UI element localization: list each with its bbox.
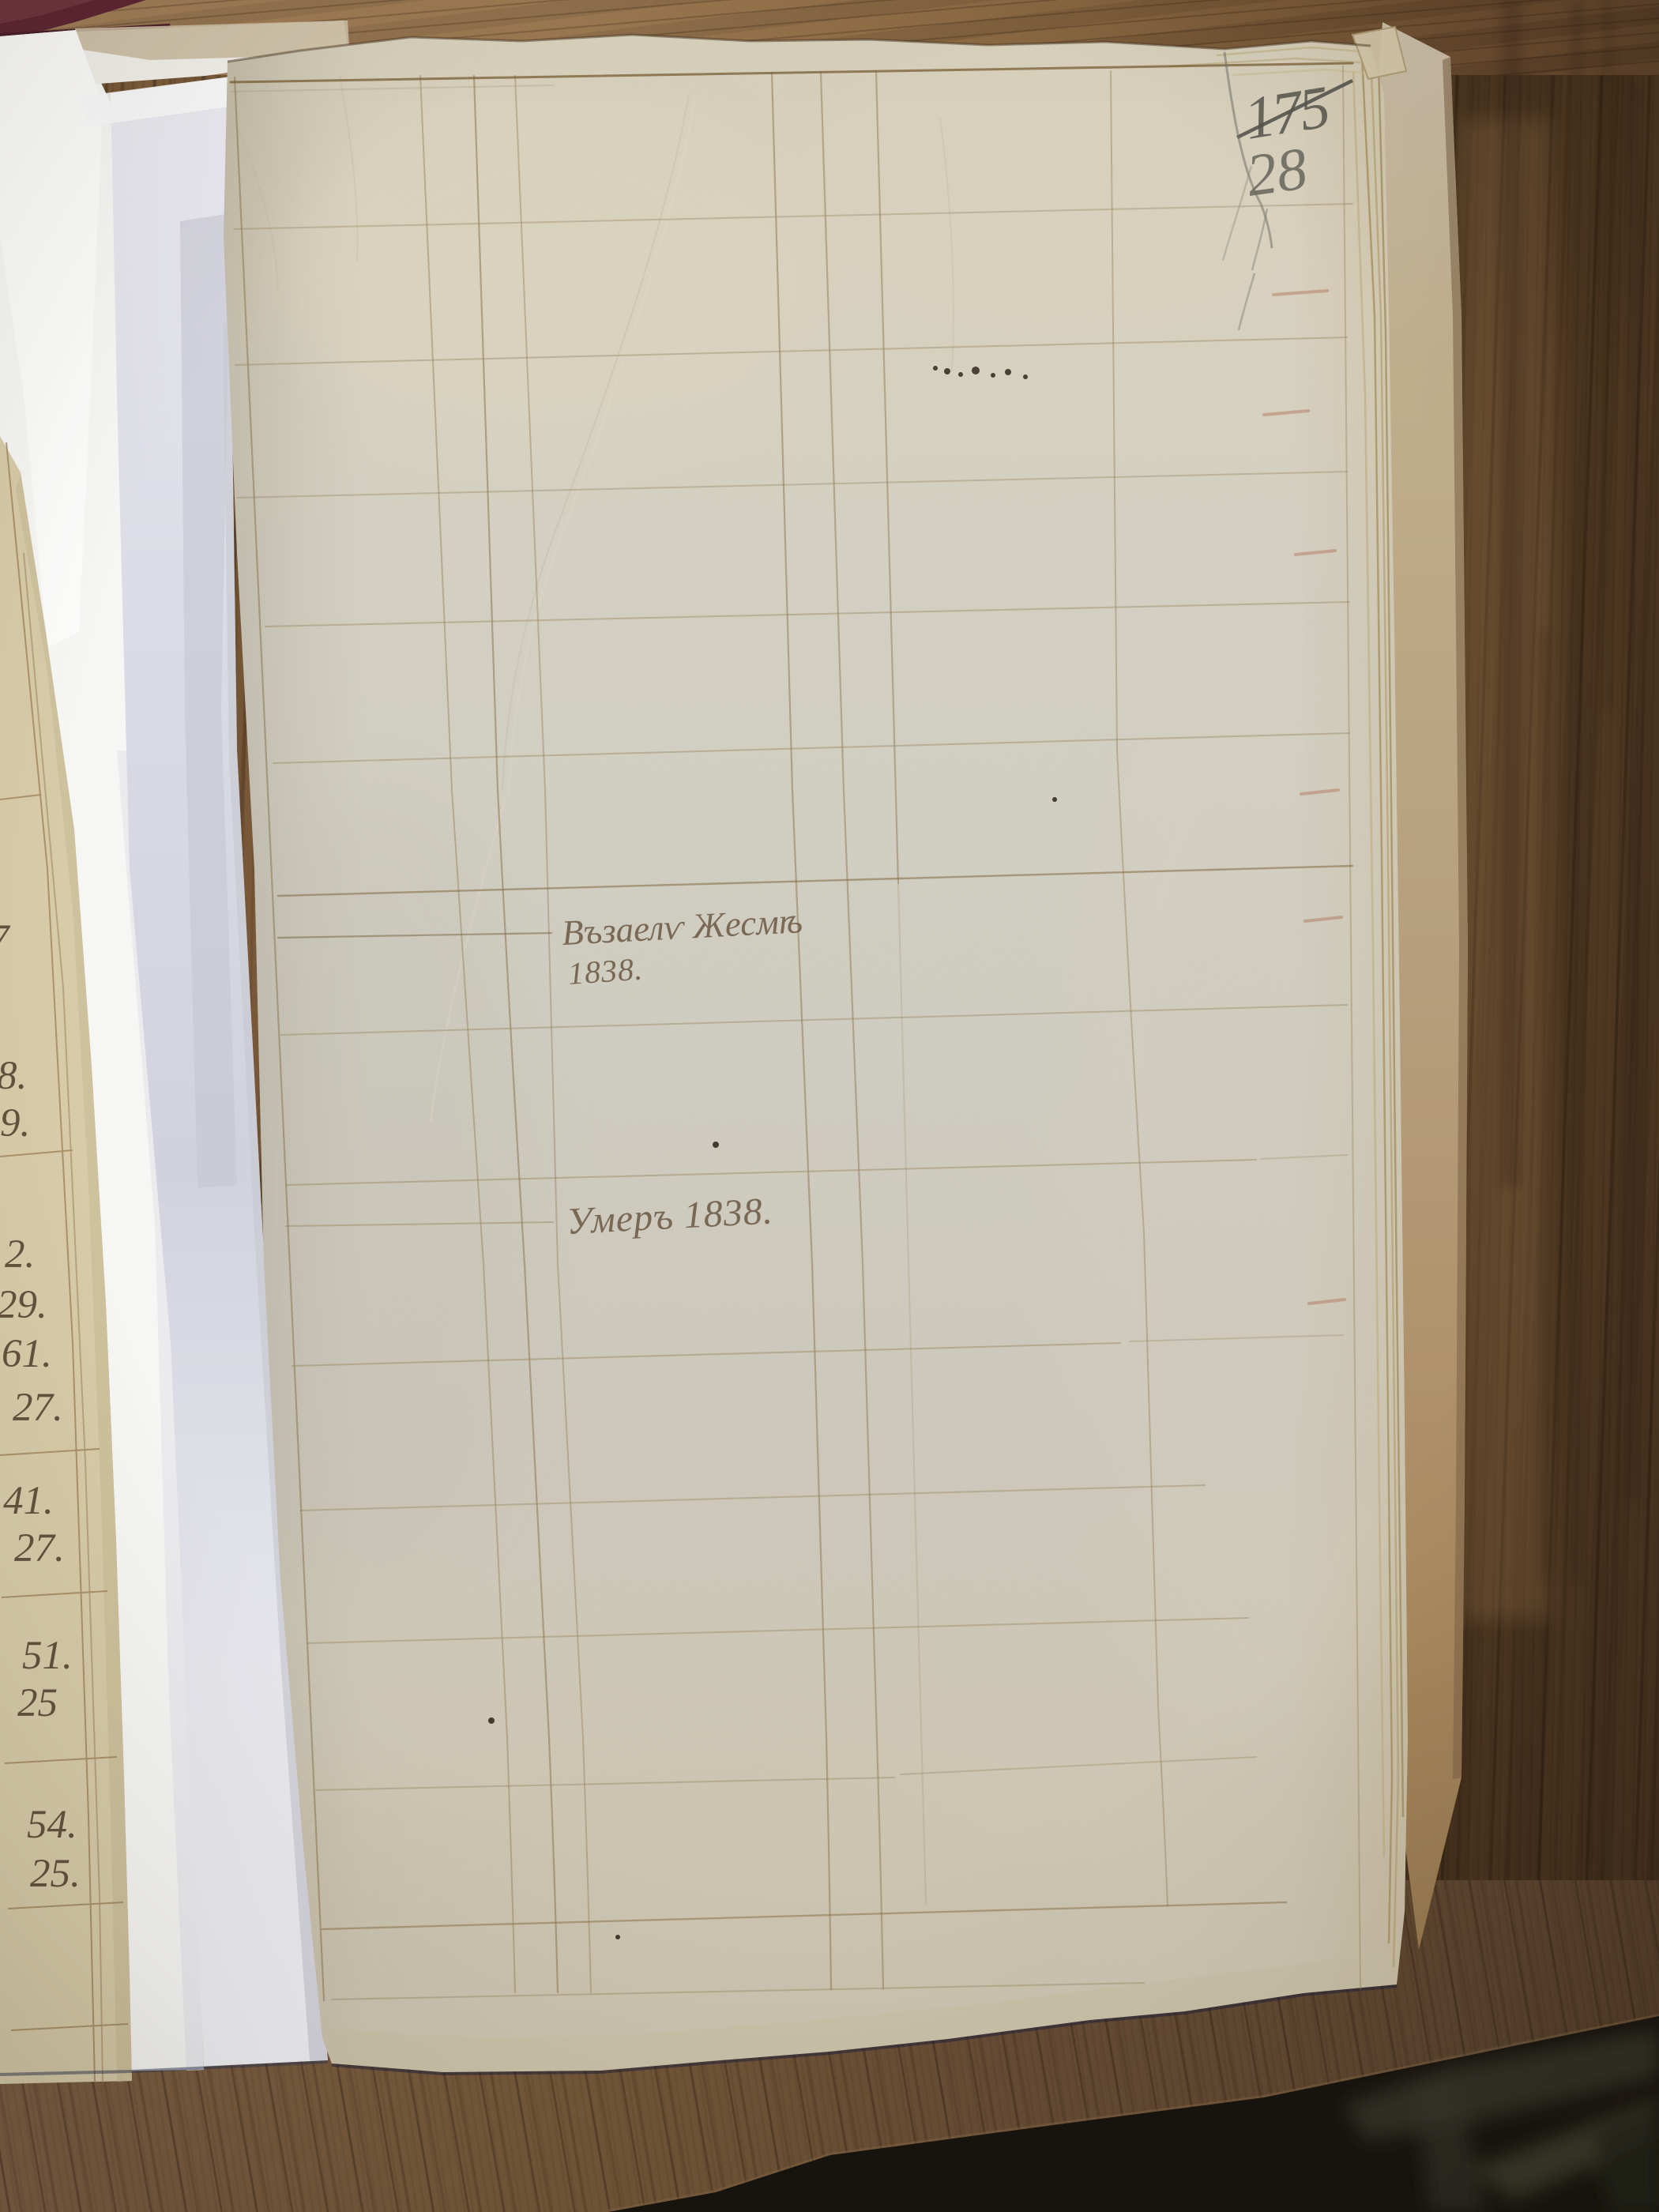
svg-text:28: 28 (1243, 135, 1311, 209)
svg-text:1838.: 1838. (566, 950, 644, 991)
